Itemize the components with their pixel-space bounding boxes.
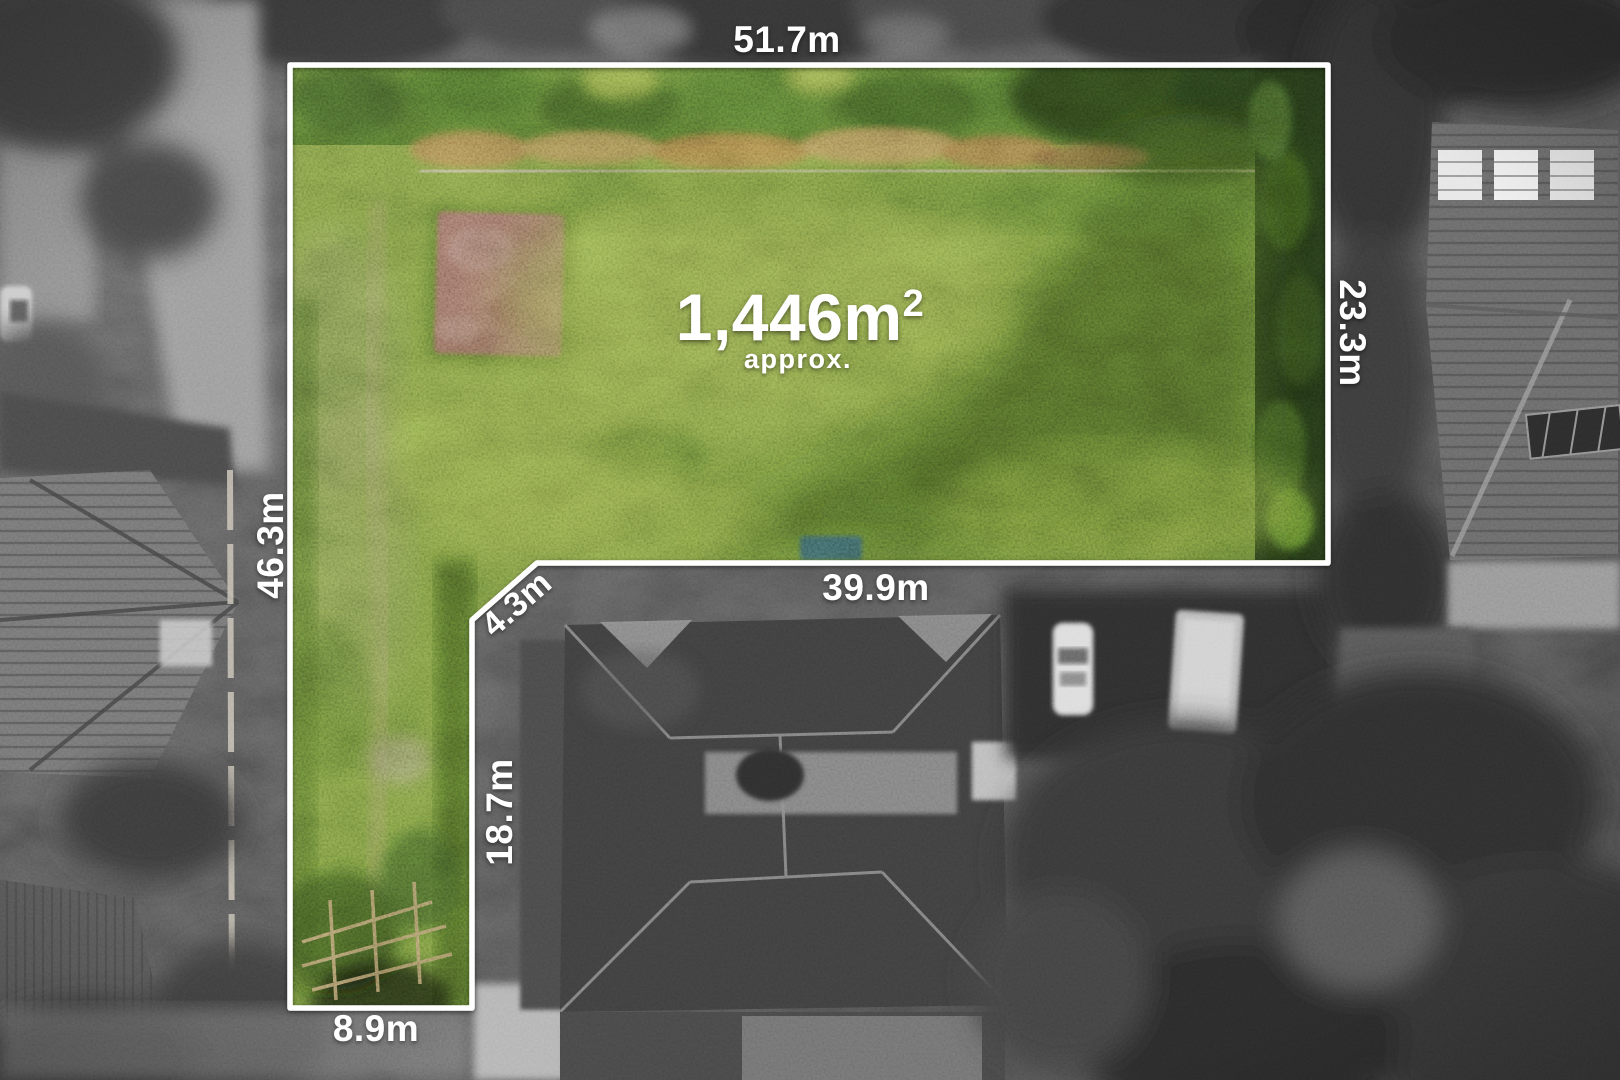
dimension-inner-bottom: 39.9m bbox=[822, 567, 929, 608]
dimension-strip-right: 18.7m bbox=[479, 758, 520, 865]
aerial-view-canvas: 51.7m 23.3m 46.3m 39.9m 4.3m 18.7m 8.9m … bbox=[0, 0, 1620, 1080]
vignette bbox=[0, 0, 1620, 1080]
aerial-property-photo: 51.7m 23.3m 46.3m 39.9m 4.3m 18.7m 8.9m … bbox=[0, 0, 1620, 1080]
area-label: 1,446m2 bbox=[676, 280, 925, 354]
dimension-left: 46.3m bbox=[250, 491, 291, 598]
area-approx-label: approx. bbox=[744, 344, 852, 374]
dimension-top: 51.7m bbox=[733, 19, 840, 60]
dimension-right: 23.3m bbox=[1332, 279, 1373, 386]
dimension-strip-bottom: 8.9m bbox=[333, 1008, 419, 1049]
